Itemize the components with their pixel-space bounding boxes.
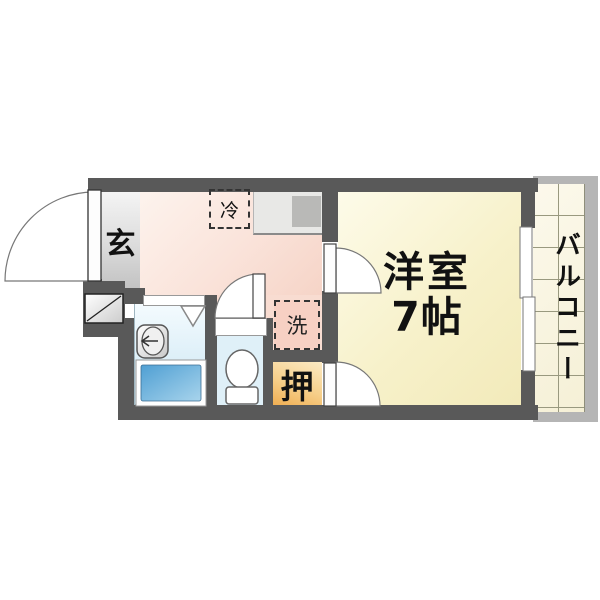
western-room-label-line2: 7帖 xyxy=(343,295,511,340)
wall-right-upper xyxy=(521,178,535,228)
washer-space: 洗 xyxy=(274,300,320,350)
entrance-label: 玄 xyxy=(106,219,136,263)
closet-label: 押 xyxy=(281,360,314,408)
corridor xyxy=(217,295,263,320)
balcony-label: バルコニー xyxy=(545,206,587,411)
western-room-label-line1: 洋室 xyxy=(343,250,511,295)
wall-nook-closet xyxy=(272,350,322,362)
washer-label: 洗 xyxy=(287,310,308,340)
fridge-space: 冷 xyxy=(209,189,250,229)
wall-center-upper xyxy=(322,192,338,242)
doorway-bathroom xyxy=(143,295,205,306)
doorway-western-room-bottom xyxy=(322,363,338,405)
kitchen-sink-stove xyxy=(292,196,321,227)
window-pane-upper xyxy=(520,227,532,298)
entrance-door-leaf xyxy=(88,190,101,281)
room-bathroom xyxy=(134,303,206,405)
room-toilet xyxy=(217,336,264,405)
western-room-label: 洋室 7帖 xyxy=(343,250,511,340)
wall-bath-toilet xyxy=(205,295,217,405)
doorway-western-room-top xyxy=(322,242,338,291)
room-entrance: 玄 xyxy=(101,192,140,289)
wall-below-entrance xyxy=(88,288,145,304)
fridge-label: 冷 xyxy=(220,196,239,223)
doorway-toilet xyxy=(215,318,267,336)
wall-top xyxy=(88,178,538,192)
wall-left-lower xyxy=(118,318,134,410)
wall-center-middle xyxy=(322,291,338,363)
wall-right-lower xyxy=(521,370,535,412)
floor-plan: { "floor_plan": { "type": "japanese-apar… xyxy=(0,0,600,600)
entrance-door-swing xyxy=(5,192,94,281)
room-closet: 押 xyxy=(272,362,322,405)
wall-bottom xyxy=(118,405,538,420)
